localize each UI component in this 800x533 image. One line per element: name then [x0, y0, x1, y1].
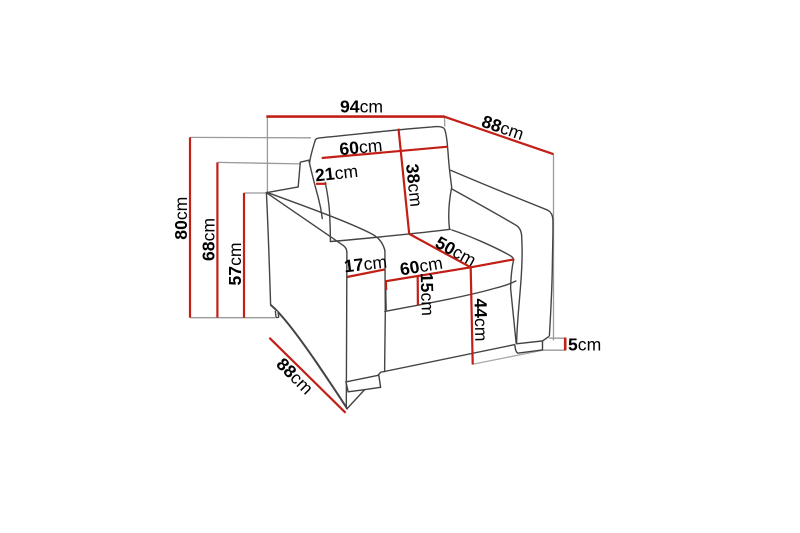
svg-text:44cm: 44cm — [471, 298, 492, 341]
svg-text:94cm: 94cm — [340, 97, 383, 117]
svg-text:57cm: 57cm — [225, 242, 245, 285]
svg-text:80cm: 80cm — [171, 197, 191, 240]
svg-text:5cm: 5cm — [568, 335, 601, 355]
svg-text:60cm: 60cm — [338, 135, 383, 159]
svg-text:68cm: 68cm — [199, 218, 219, 261]
svg-text:15cm: 15cm — [417, 273, 438, 317]
